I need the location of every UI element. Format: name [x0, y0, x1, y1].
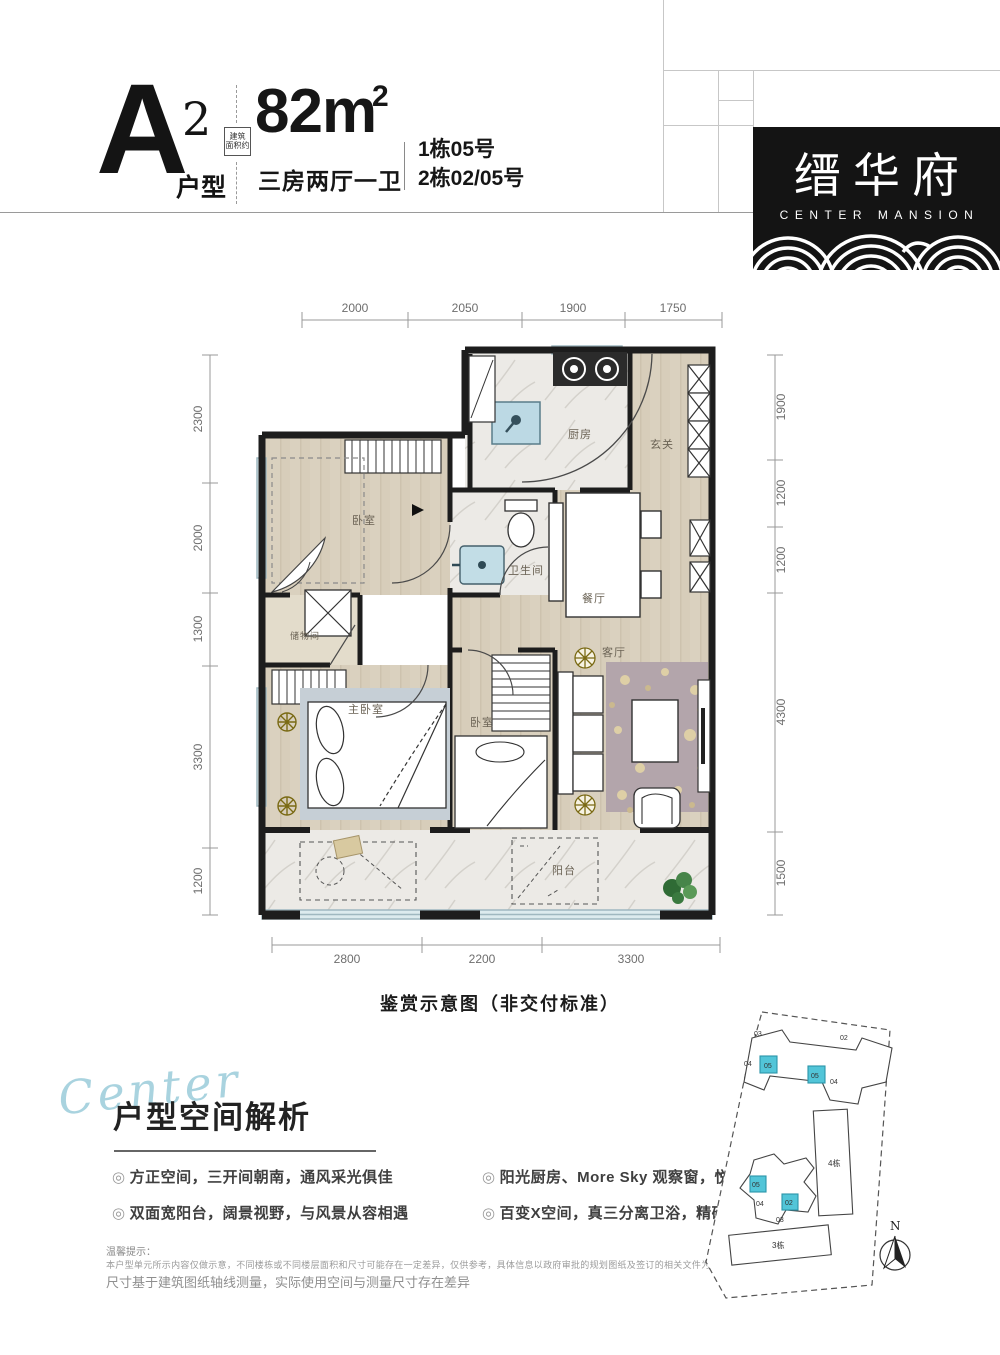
coffee-table — [632, 700, 678, 762]
washbasin-icon — [452, 546, 504, 584]
disclaimer-title: 温馨提示： — [106, 1243, 156, 1258]
dim-top-3: 1900 — [560, 301, 587, 315]
dim-top-1: 2000 — [342, 301, 369, 315]
area-stamp: 建筑 面积约 — [224, 127, 251, 156]
unit-type-label: 户型 — [176, 168, 226, 204]
bullet-icon: ◎ — [482, 1169, 496, 1186]
zebra-pattern — [753, 232, 1000, 270]
decor-grid-line — [718, 100, 753, 101]
analysis-underline — [114, 1150, 376, 1152]
floorplan: 厨房 玄关 卧室 卫生间 餐厅 储物间 主卧室 卧室 客厅 阳台 2000 20… — [0, 290, 1000, 990]
decor-grid-line — [718, 70, 719, 213]
disclaimer-line2: 尺寸基于建筑图纸轴线测量，实际使用空间与测量尺寸存在差异 — [106, 1272, 470, 1291]
room-label-storage: 储物间 — [290, 630, 320, 641]
area-stamp-line1: 建筑 — [230, 132, 246, 141]
site-label-bldg3: 3栋 — [772, 1240, 784, 1250]
header-divider — [404, 142, 405, 190]
svg-text:02: 02 — [840, 1035, 848, 1042]
site-label-bldg4: 4栋 — [828, 1158, 840, 1168]
decor-grid-line — [663, 70, 1000, 71]
decor-grid-line — [663, 0, 664, 213]
kitchen-sink-icon — [492, 402, 540, 444]
decor-grid-line — [753, 70, 754, 127]
dim-left-2: 2000 — [191, 524, 205, 551]
room-label-kitchen: 厨房 — [568, 428, 592, 441]
header-dashed-divider — [236, 85, 237, 123]
room-label-living: 客厅 — [602, 645, 626, 659]
unit-letter-sup: 2 — [182, 92, 211, 146]
bullet-icon: ◎ — [482, 1205, 496, 1222]
dim-right-1: 1900 — [774, 393, 788, 420]
dim-right-3: 1200 — [774, 546, 788, 573]
dim-bottom-2: 2200 — [469, 952, 496, 966]
area-stamp-line2: 面积约 — [226, 141, 250, 150]
brand-name-en: CENTER MANSION — [753, 208, 1000, 222]
svg-text:05: 05 — [811, 1073, 819, 1080]
room-label-bath: 卫生间 — [508, 563, 544, 577]
unit-letter: A — [96, 66, 184, 194]
svg-text:02: 02 — [785, 1200, 793, 1207]
dim-right-5: 1500 — [774, 859, 788, 886]
analysis-title: 户型空间解析 — [113, 1092, 311, 1137]
svg-text:04: 04 — [744, 1061, 752, 1068]
disclaimer-line1: 本户型单元所示内容仅做示意，不同楼栋或不同楼层面积和尺寸可能存在一定差异，仅供参… — [106, 1258, 729, 1271]
dim-right-2: 1200 — [774, 479, 788, 506]
poster-page: A 2 户型 建筑 面积约 82m 2 三房两厅一卫 1栋05号 2栋02/05… — [0, 0, 1000, 1355]
dim-left-5: 1200 — [191, 867, 205, 894]
brand-name-cn: 缙华府 — [753, 137, 1000, 206]
room-label-bedroom1: 卧室 — [352, 513, 376, 527]
room-label-bedroom2: 卧室 — [470, 715, 494, 729]
svg-text:05: 05 — [752, 1182, 760, 1189]
compass-n-label: N — [890, 1219, 901, 1233]
area-value: 82m — [255, 76, 376, 147]
dim-top-2: 2050 — [452, 301, 479, 315]
room-label-master: 主卧室 — [348, 702, 384, 716]
building-numbers-line1: 1栋05号 — [418, 133, 495, 163]
bullet-3: ◎双面宽阳台，阔景视野，与风景从容相遇 — [112, 1202, 409, 1223]
room-config: 三房两厅一卫 — [258, 162, 402, 196]
room-label-balcony: 阳台 — [552, 863, 576, 877]
dim-bottom-1: 2800 — [334, 952, 361, 966]
dim-left-3: 1300 — [191, 615, 205, 642]
decor-grid-line — [663, 125, 753, 126]
bullet-icon: ◎ — [112, 1205, 126, 1222]
bullet-icon: ◎ — [112, 1169, 126, 1186]
sofa — [558, 672, 603, 794]
dim-left-4: 3300 — [191, 743, 205, 770]
siteplan: 03 02 04 05 05 04 05 04 02 03 4栋 3栋 N — [690, 1000, 1000, 1320]
svg-text:04: 04 — [830, 1079, 838, 1086]
armchair — [634, 788, 680, 828]
tv-console — [698, 680, 710, 792]
room-label-dining: 餐厅 — [582, 591, 606, 605]
toilet-icon — [505, 500, 537, 547]
svg-text:04: 04 — [756, 1201, 764, 1208]
area-sup: 2 — [372, 80, 389, 114]
building-numbers-line2: 2栋02/05号 — [418, 162, 524, 192]
brand-logo: 缙华府 CENTER MANSION — [753, 127, 1000, 232]
dim-bottom-3: 3300 — [618, 952, 645, 966]
stove-icon — [553, 352, 627, 386]
compass-icon: N — [880, 1219, 910, 1270]
svg-text:03: 03 — [754, 1031, 762, 1038]
dim-left-1: 2300 — [191, 405, 205, 432]
svg-text:03: 03 — [776, 1217, 784, 1224]
header-dashed-divider-2 — [236, 162, 237, 204]
svg-text:05: 05 — [764, 1063, 772, 1070]
bullet-1: ◎方正空间，三开间朝南，通风采光俱佳 — [112, 1166, 393, 1187]
room-label-entry: 玄关 — [650, 437, 674, 451]
kitchen-flue — [469, 356, 495, 422]
dim-top-4: 1750 — [660, 301, 687, 315]
dim-right-4: 4300 — [774, 698, 788, 725]
